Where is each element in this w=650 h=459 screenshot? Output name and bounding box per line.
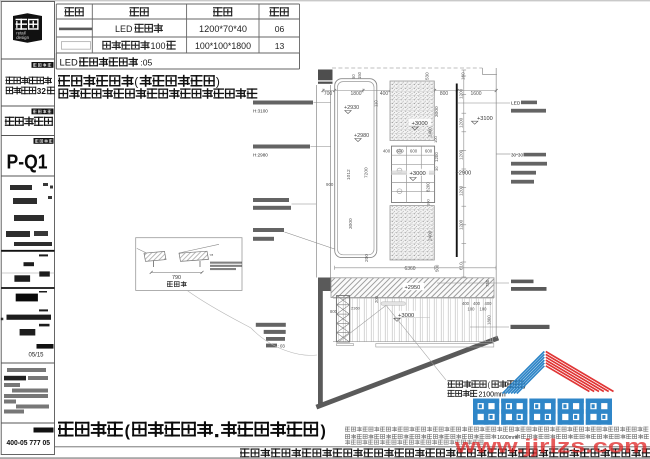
- svg-text:100: 100: [468, 307, 476, 312]
- svg-text:800: 800: [330, 309, 338, 314]
- svg-text:1012: 1012: [346, 169, 352, 180]
- svg-text:400: 400: [380, 91, 389, 97]
- svg-text:3000: 3000: [434, 106, 440, 117]
- svg-text:8200: 8200: [426, 182, 431, 192]
- svg-text::05: :05: [140, 58, 152, 68]
- svg-text:2100mm: 2100mm: [479, 391, 506, 398]
- svg-text:30*30: 30*30: [511, 153, 523, 158]
- svg-text:1200: 1200: [434, 152, 439, 162]
- svg-text:700: 700: [324, 91, 333, 97]
- svg-text:30: 30: [434, 166, 439, 171]
- svg-text:200: 200: [374, 295, 379, 303]
- svg-text:32: 32: [37, 87, 47, 96]
- svg-text:(: (: [125, 423, 131, 440]
- svg-text:600: 600: [425, 149, 433, 154]
- svg-text:www.jjrlzs.com: www.jjrlzs.com: [454, 436, 648, 458]
- svg-text:530: 530: [425, 72, 430, 80]
- svg-text:200: 200: [364, 254, 370, 262]
- svg-text:): ): [216, 74, 220, 88]
- svg-text:610: 610: [459, 262, 464, 270]
- svg-text:P-Q1: P-Q1: [7, 152, 48, 174]
- svg-text:800: 800: [440, 91, 449, 97]
- svg-text:900: 900: [326, 182, 334, 187]
- svg-text:400: 400: [485, 301, 493, 306]
- svg-text:): ): [321, 423, 326, 440]
- svg-text:790: 790: [172, 275, 181, 281]
- svg-text:1600: 1600: [470, 91, 481, 97]
- svg-text:2360: 2360: [351, 306, 361, 311]
- svg-text:50: 50: [351, 74, 356, 79]
- svg-text:1200: 1200: [459, 149, 464, 160]
- svg-text:LED: LED: [511, 100, 521, 106]
- svg-text:400: 400: [383, 149, 391, 154]
- svg-text:100: 100: [480, 307, 488, 312]
- svg-text:100*100*1800: 100*100*1800: [195, 41, 251, 51]
- svg-text:(: (: [488, 380, 491, 389]
- svg-text:6360: 6360: [404, 266, 415, 272]
- svg-text:+2980: +2980: [354, 133, 369, 139]
- svg-text:100: 100: [426, 199, 431, 206]
- svg-text:7200: 7200: [364, 167, 370, 178]
- svg-text:100: 100: [433, 136, 438, 143]
- svg-text:2400: 2400: [428, 230, 433, 241]
- svg-text:750: 750: [485, 279, 490, 287]
- svg-text:13: 13: [275, 41, 285, 51]
- svg-text:1200*70*40: 1200*70*40: [199, 24, 247, 34]
- svg-text:(: (: [134, 74, 138, 88]
- svg-text:500: 500: [435, 264, 440, 272]
- svg-text:+3000: +3000: [412, 121, 428, 127]
- svg-text:H:3100: H:3100: [253, 108, 268, 113]
- svg-text:+2930: +2930: [344, 105, 359, 111]
- svg-text:LED: LED: [115, 24, 133, 34]
- svg-text:150: 150: [357, 71, 362, 79]
- svg-text:+3100: +3100: [477, 116, 493, 122]
- svg-text:05/15: 05/15: [28, 353, 44, 359]
- svg-text:400: 400: [473, 301, 481, 306]
- svg-text:+3000: +3000: [410, 171, 426, 177]
- svg-text:design: design: [16, 35, 29, 40]
- svg-text:LED: LED: [60, 57, 78, 68]
- svg-text:100: 100: [151, 41, 166, 51]
- svg-text:+2900: +2900: [456, 171, 472, 177]
- svg-text:110: 110: [374, 100, 379, 107]
- svg-text:600: 600: [396, 149, 404, 154]
- svg-text:1200: 1200: [459, 185, 464, 196]
- svg-text:Y8: Y8: [210, 253, 214, 257]
- svg-text:400-05 777 05: 400-05 777 05: [7, 438, 51, 447]
- svg-text:600: 600: [410, 149, 418, 154]
- svg-text:+2950: +2950: [405, 285, 421, 291]
- svg-text:1800: 1800: [350, 91, 361, 97]
- svg-text:2400: 2400: [428, 127, 433, 137]
- svg-text:400: 400: [462, 301, 470, 306]
- svg-text:3000: 3000: [348, 218, 354, 229]
- svg-text:1200: 1200: [459, 219, 464, 230]
- svg-text:06: 06: [275, 24, 285, 34]
- svg-text:1200: 1200: [459, 117, 464, 128]
- svg-text:H:2980: H:2980: [253, 152, 268, 157]
- svg-text:1800: 1800: [487, 315, 492, 325]
- svg-text:1200: 1200: [459, 88, 464, 99]
